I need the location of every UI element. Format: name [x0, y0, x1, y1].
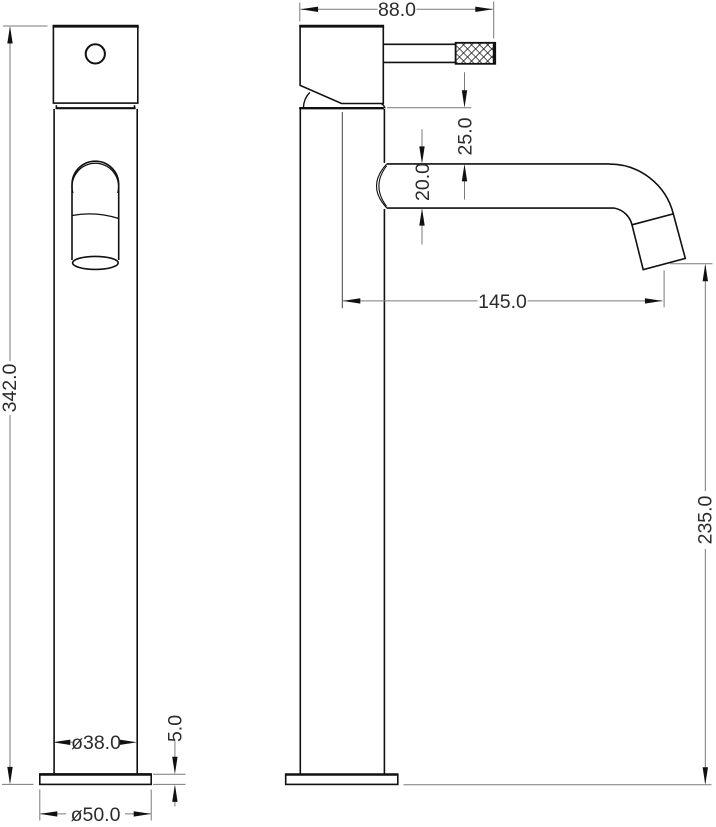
svg-text:ø38.0: ø38.0: [71, 732, 121, 754]
svg-text:88.0: 88.0: [378, 0, 416, 21]
svg-text:342.0: 342.0: [0, 363, 21, 412]
svg-text:5.0: 5.0: [165, 715, 187, 742]
svg-text:145.0: 145.0: [478, 291, 527, 313]
svg-text:ø50.0: ø50.0: [71, 804, 121, 826]
svg-text:25.0: 25.0: [455, 117, 477, 155]
svg-text:20.0: 20.0: [412, 163, 434, 201]
svg-text:235.0: 235.0: [695, 495, 716, 544]
